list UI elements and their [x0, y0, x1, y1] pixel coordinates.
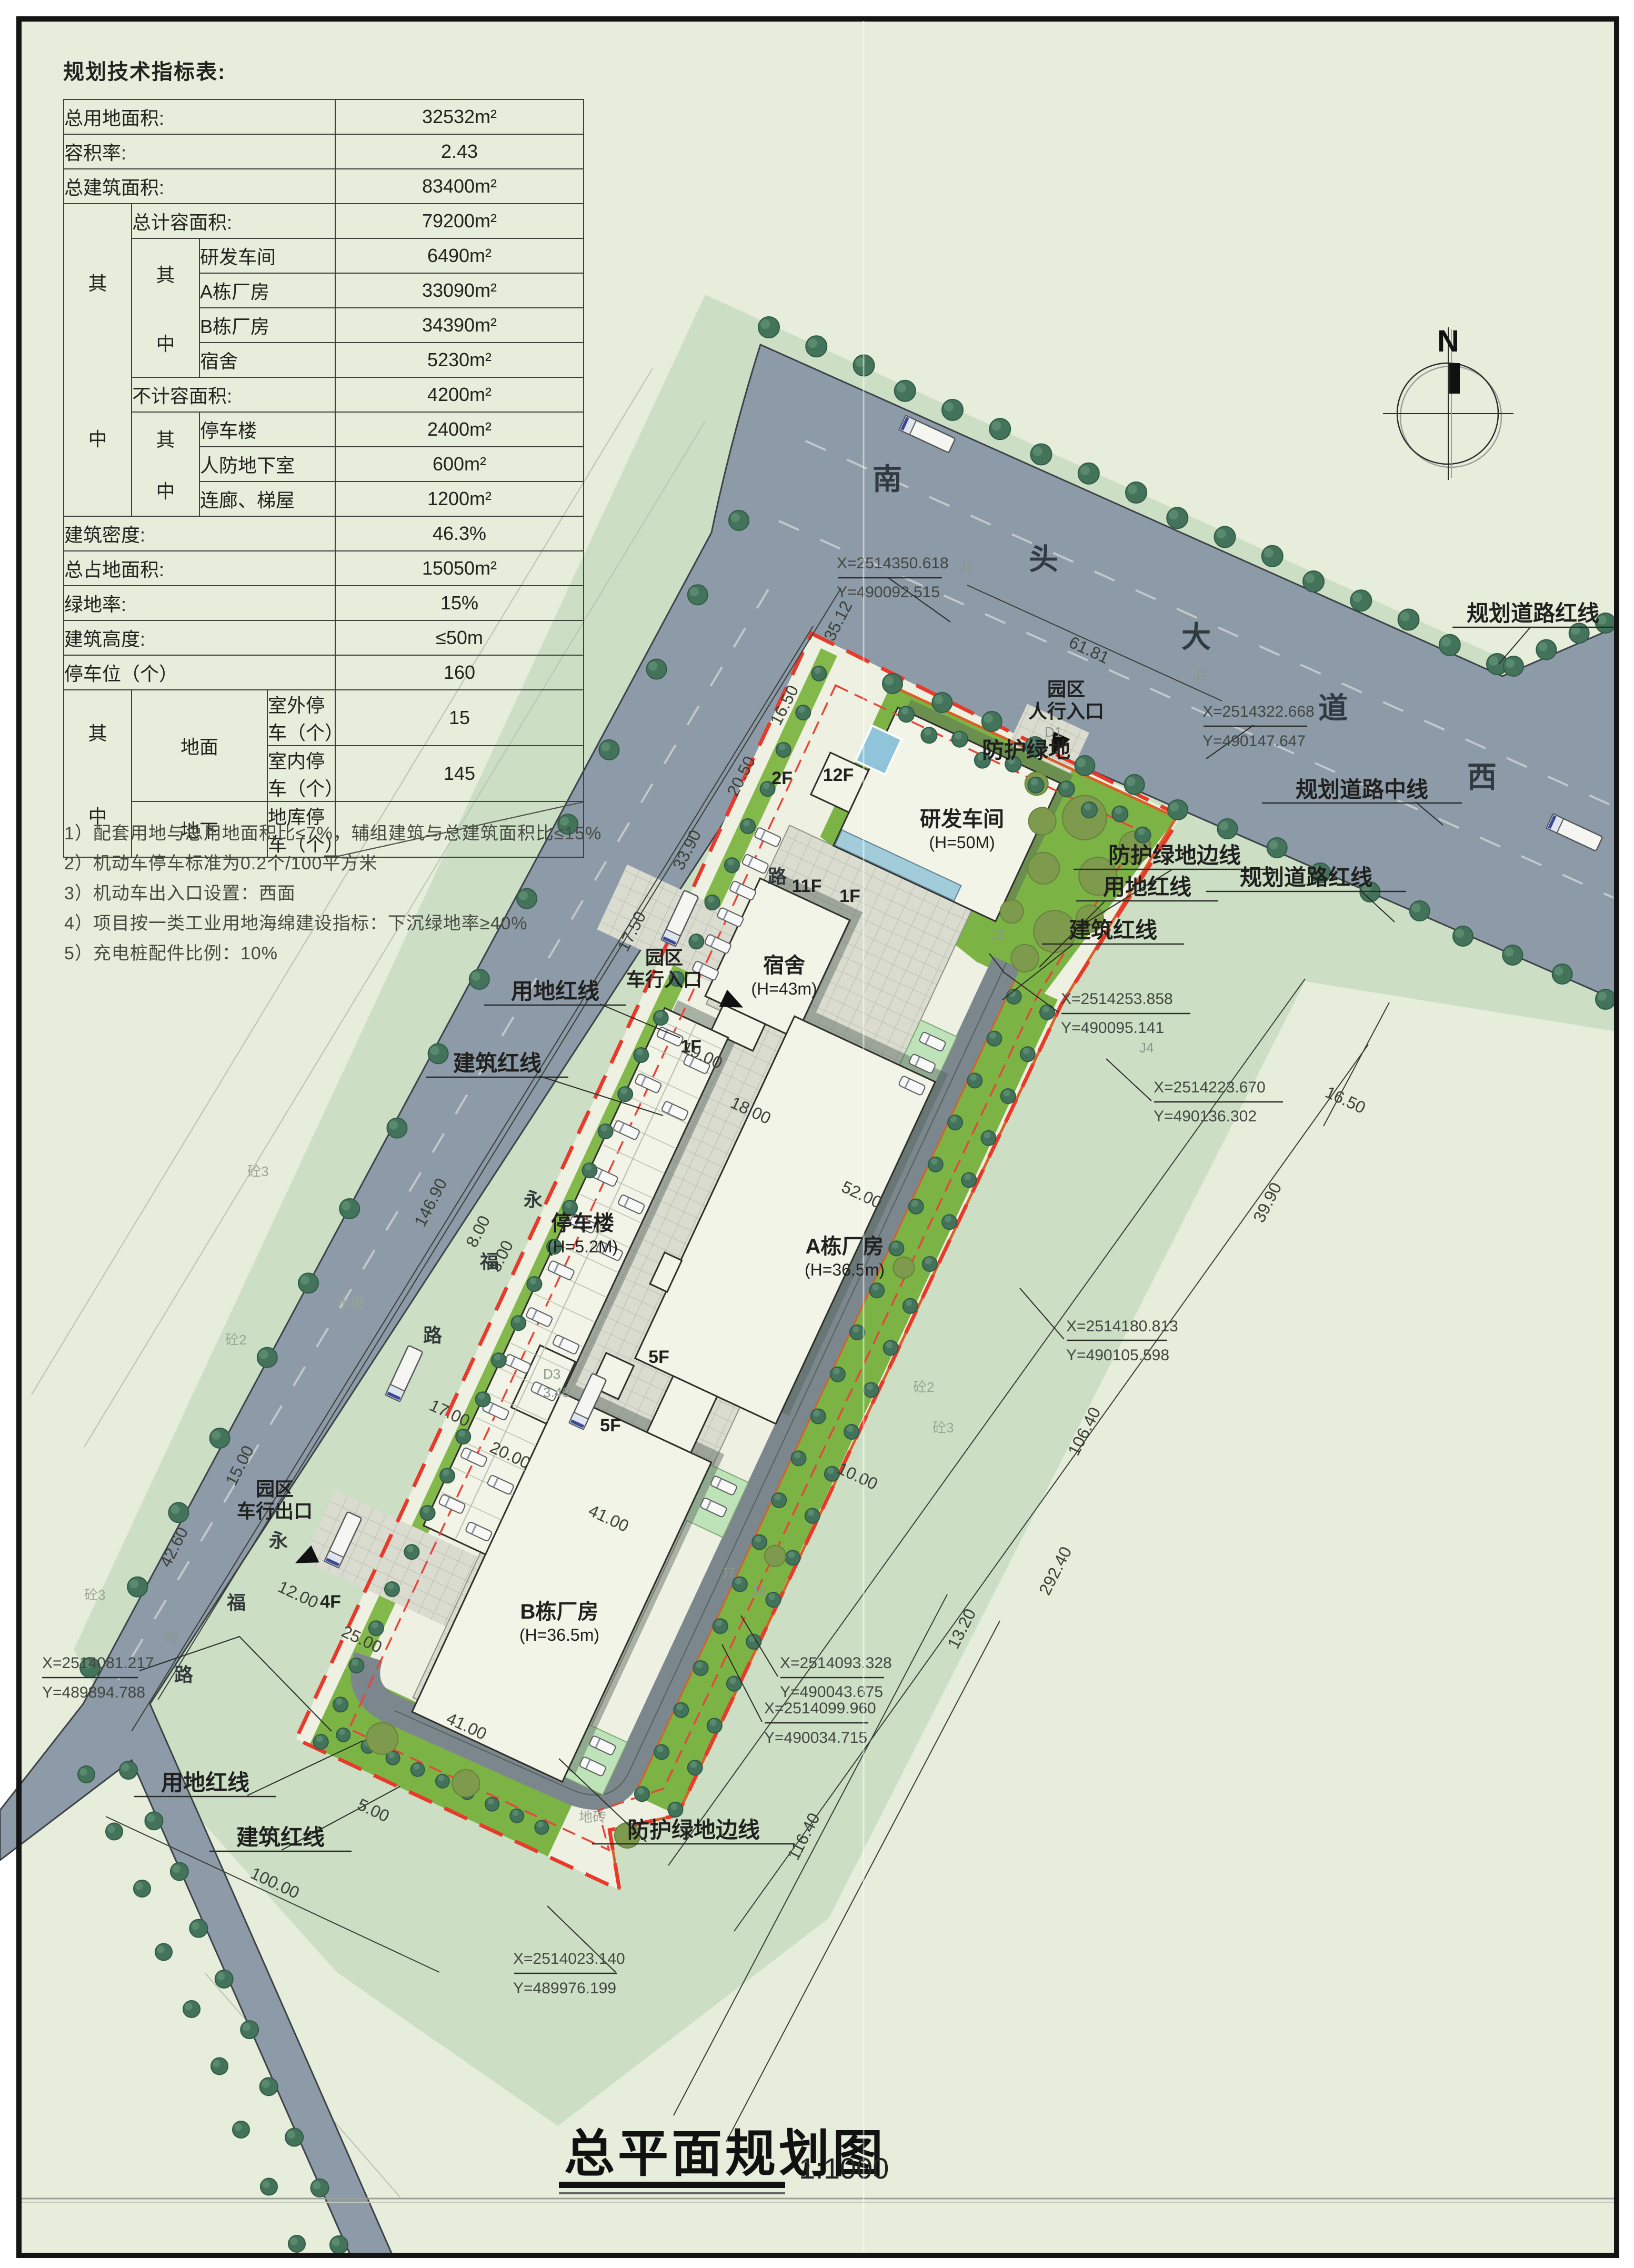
coord-y: Y=490095.141: [1061, 1019, 1164, 1037]
label-factory-a: A栋厂房: [806, 1235, 884, 1258]
row-label: B栋厂房: [199, 308, 335, 343]
label-vehicle-exit: 园区: [256, 1478, 294, 1500]
group-qizhong-inner: 其中: [132, 412, 199, 516]
row-value: 600m²: [335, 447, 584, 481]
marker: J1: [959, 558, 973, 574]
row-value: 33090m²: [335, 273, 584, 308]
tree-icon: [599, 740, 619, 760]
tree-icon: [339, 1199, 359, 1219]
row-value: 6490m²: [335, 238, 584, 273]
table-row: 容积率:2.43: [64, 134, 584, 169]
floor-tag-5f: 5F: [600, 1416, 621, 1436]
label-site-red-line-bottom: 用地红线: [161, 1770, 249, 1795]
row-label: 人防地下室: [199, 447, 335, 481]
row-value: 15050m²: [335, 551, 584, 586]
coord-y: Y=490136.302: [1154, 1108, 1257, 1125]
tree-icon: [1439, 635, 1460, 656]
note-line: 5）充电桩配件比例：10%: [64, 939, 748, 969]
label-site-red-line-right: 用地红线: [1103, 875, 1191, 899]
coord-x: X=2514093.328: [780, 1654, 892, 1672]
tree-icon: [1303, 571, 1324, 592]
tree-icon: [155, 1944, 172, 1961]
tree-icon: [215, 1970, 233, 1988]
group-ground: 地面: [132, 690, 267, 801]
char: 其: [88, 268, 107, 296]
row-label: 绿地率:: [64, 586, 335, 620]
label-planned-road-red-line-bottom: 规划道路红线: [1240, 865, 1372, 890]
floor-tag-4f: 4F: [320, 1592, 341, 1612]
label-pedestrian-entry: 园区: [1047, 678, 1085, 700]
table-row: 总占地面积:15050m²: [64, 551, 584, 586]
tree-icon: [1167, 507, 1188, 528]
table-row: 其中 地面 室外停车（个）15: [64, 690, 584, 746]
street-name-char: 福: [226, 1592, 246, 1613]
floor-tag-2f: 2F: [771, 768, 793, 788]
note-line: 1）配套用地与总用地面积比≤7%，辅组建筑与总建筑面积比≤15%: [64, 819, 748, 849]
road-name-char: 西: [1467, 760, 1497, 794]
coord-x: X=2514322.668: [1202, 703, 1315, 720]
tree-icon: [183, 2001, 200, 2018]
table-row: 其中 总计容面积:79200m²: [64, 204, 584, 238]
survey-text: 砼3: [933, 1420, 954, 1436]
tree-icon: [1078, 463, 1099, 484]
table-row: 其中 停车楼2400m²: [64, 412, 584, 447]
coord-y: Y=489894.788: [42, 1684, 145, 1701]
row-value: 32532m²: [335, 99, 584, 134]
row-value: 5230m²: [335, 343, 584, 377]
row-value: 2.43: [335, 134, 584, 169]
coord-x: X=2514180.813: [1066, 1318, 1178, 1335]
title-underline: [559, 2182, 785, 2188]
floor-tag-11f: 11F: [792, 876, 822, 896]
coord-y: Y=490105.598: [1066, 1347, 1169, 1364]
tree-icon: [298, 1273, 318, 1293]
row-value: ≤50m: [335, 620, 584, 655]
tree-icon: [758, 317, 779, 338]
tree-icon: [883, 674, 903, 694]
label-building-red-line-bottom: 建筑红线: [236, 1825, 325, 1850]
label-factory-b: B栋厂房: [520, 1600, 599, 1623]
char: 其: [88, 718, 107, 746]
note-line: 3）机动车出入口设置：西面: [64, 879, 748, 909]
tree-icon: [729, 510, 749, 530]
tree-icon: [119, 1761, 137, 1779]
row-label: 总计容面积:: [132, 204, 335, 238]
table-row: 总用地面积:32532m²: [64, 99, 584, 134]
coord-y: Y=489976.199: [513, 1980, 616, 1997]
row-value: 2400m²: [335, 412, 584, 447]
marker: 3.40: [543, 1384, 570, 1400]
row-value: 15: [335, 690, 584, 746]
road-name-char: 大: [1181, 620, 1211, 654]
table-row: 停车位（个）160: [64, 655, 584, 690]
survey-text: 地砖: [579, 1809, 606, 1825]
char: 其: [156, 425, 175, 452]
table-row: 不计容面积:4200m²: [64, 377, 584, 412]
tree-icon: [145, 1812, 163, 1830]
tree-icon: [1215, 527, 1236, 548]
survey-text: 水泥: [337, 1295, 364, 1311]
label-dormitory-height: (H=43m): [751, 979, 817, 998]
row-value: 145: [335, 746, 584, 801]
tree-icon: [127, 1577, 147, 1597]
label-rnd-workshop: 研发车间: [920, 808, 1004, 831]
note-line: 2）机动车停车标准为0.2个/100平方米: [64, 849, 748, 879]
tree-icon: [1398, 609, 1419, 630]
tree-icon: [257, 1348, 277, 1368]
row-value: 83400m²: [335, 169, 584, 204]
survey-text: 砼2: [913, 1379, 934, 1395]
tree-icon: [1596, 989, 1616, 1009]
tree-icon: [1569, 623, 1589, 643]
marker: J4: [1139, 1040, 1154, 1056]
row-value: 34390m²: [335, 308, 584, 343]
label-building-red-line-left: 建筑红线: [453, 1051, 542, 1076]
coord-y: Y=490092.515: [837, 584, 940, 601]
north-needle: [1449, 363, 1460, 394]
tree-icon: [210, 1428, 230, 1448]
tree-icon: [1168, 800, 1188, 820]
row-value: 79200m²: [335, 204, 584, 238]
label-planned-road-red-line-top: 规划道路红线: [1467, 601, 1599, 626]
tree-icon: [1536, 640, 1556, 660]
street-name-char: 路: [174, 1664, 194, 1685]
row-label: 建筑高度:: [64, 620, 335, 655]
label-dormitory: 宿舍: [763, 954, 805, 977]
tree-icon: [469, 969, 489, 989]
tree-icon: [1262, 546, 1283, 567]
row-label: 室外停车（个）: [267, 690, 335, 746]
site-plan-page: 南 头 大 道 西 永 福 路 永 福 路 路 用地红线 建筑红线 用地红线 建…: [0, 0, 1634, 2265]
tree-icon: [806, 336, 827, 357]
indicator-table-panel: 规划技术指标表: 总用地面积:32532m² 容积率:2.43 总建筑面积:83…: [63, 55, 587, 858]
table-row: 绿地率:15%: [64, 586, 584, 620]
coord-x: X=2514081.217: [42, 1654, 154, 1672]
tree-icon: [311, 2179, 329, 2197]
row-label: 研发车间: [199, 238, 335, 273]
table-title: 规划技术指标表:: [63, 55, 587, 85]
survey-text: 砼2: [225, 1332, 246, 1348]
tree-icon: [106, 1823, 123, 1840]
tree-icon: [387, 1118, 407, 1138]
label-protective-green: 防护绿地: [982, 738, 1070, 762]
tree-icon: [1075, 756, 1095, 776]
marker: J3: [990, 927, 1005, 942]
survey-text: 砼3: [84, 1587, 105, 1603]
road-name-char: 南: [873, 463, 902, 496]
marker: D1: [1045, 724, 1062, 740]
coord-x: X=2514099.960: [764, 1700, 876, 1717]
page-scale: 1:1000: [799, 2152, 889, 2185]
tree-icon: [932, 693, 952, 712]
row-label: 建筑密度:: [64, 516, 335, 551]
marker: D3: [543, 1366, 560, 1382]
tree-icon: [1503, 656, 1523, 676]
coord-x: X=2514223.670: [1154, 1079, 1266, 1096]
marker: J7: [721, 1565, 735, 1581]
north-letter: N: [1437, 324, 1459, 358]
tree-icon: [168, 1502, 188, 1522]
char: 中: [156, 476, 175, 504]
tree-icon: [288, 2235, 305, 2252]
floor-tag-1f: 1F: [839, 886, 860, 906]
tree-icon: [171, 1862, 188, 1880]
tree-icon: [1502, 945, 1522, 965]
tree-icon: [1031, 444, 1052, 465]
tree-icon: [1217, 819, 1237, 839]
road-name-char: 道: [1318, 691, 1348, 725]
group-qizhong-inner: 其中: [132, 238, 199, 377]
char: 其: [156, 260, 175, 287]
row-label: 容积率:: [64, 134, 335, 169]
row-label: 不计容面积:: [132, 377, 335, 412]
tree-icon: [330, 2236, 348, 2254]
row-label: 连廊、梯屋: [199, 481, 335, 516]
row-value: 15%: [335, 586, 584, 620]
coord-x: X=2514253.858: [1061, 990, 1173, 1008]
label-site-red-line-left: 用地红线: [511, 979, 599, 1003]
row-label: 室内停车（个）: [267, 746, 335, 801]
row-value: 4200m²: [335, 377, 584, 412]
tree-icon: [647, 659, 667, 679]
tree-icon: [189, 1920, 207, 1938]
tree-icon: [260, 2078, 278, 2095]
label-parking-deck: 停车楼: [551, 1212, 614, 1235]
row-label: A栋厂房: [199, 273, 335, 308]
tree-icon: [240, 2021, 258, 2039]
table-row: 建筑高度:≤50m: [64, 620, 584, 655]
tree-icon: [989, 418, 1010, 439]
group-qizhong-outer: 其中: [64, 204, 132, 516]
tree-icon: [285, 2129, 303, 2146]
coord-y: Y=490043.675: [780, 1683, 883, 1701]
tree-icon: [1125, 775, 1145, 795]
label-vehicle-exit: 车行出口: [237, 1500, 313, 1522]
marker: J9: [163, 1629, 177, 1645]
label-parking-deck-height: (H=5.2M): [547, 1237, 618, 1256]
row-value: 46.3%: [335, 516, 584, 551]
street-name-char: 路: [423, 1324, 443, 1346]
tree-icon: [895, 380, 916, 402]
label-rnd-workshop-height: (H=50M): [929, 833, 995, 852]
label-building-red-line-right: 建筑红线: [1069, 918, 1157, 942]
tree-icon: [211, 2058, 228, 2075]
street-name-char: 永: [524, 1189, 543, 1210]
tree-icon: [1410, 901, 1430, 921]
row-value: 160: [335, 655, 584, 690]
coord-y: Y=490034.715: [764, 1729, 867, 1747]
row-label: 宿舍: [199, 343, 335, 377]
char: 中: [88, 424, 107, 451]
road-name-char: 头: [1029, 543, 1058, 576]
tree-icon: [428, 1043, 448, 1063]
street-name-char: 路: [768, 866, 787, 887]
char: 中: [156, 329, 175, 356]
row-label: 停车位（个）: [64, 655, 335, 690]
plan-notes: 1）配套用地与总用地面积比≤7%，辅组建筑与总建筑面积比≤15% 2）机动车停车…: [64, 819, 748, 969]
tree-icon: [982, 711, 1002, 731]
street-name-char: 永: [269, 1530, 288, 1551]
label-vehicle-entry: 车行入口: [626, 969, 702, 990]
tree-icon: [1350, 590, 1371, 611]
tree-icon: [1453, 926, 1473, 946]
label-protective-green-edge-bottom: 防护绿地边线: [627, 1818, 760, 1842]
marker: J2: [1194, 667, 1208, 683]
tree-icon: [942, 399, 963, 420]
survey-text: 砼3: [247, 1163, 268, 1179]
row-label: 总建筑面积:: [64, 169, 335, 204]
label-protective-green-edge-right: 防护绿地边线: [1108, 843, 1241, 868]
row-label: 总用地面积:: [64, 99, 335, 134]
coord-x: X=2514350.618: [837, 555, 949, 572]
tree-icon: [233, 2121, 249, 2138]
tree-icon: [260, 2179, 277, 2195]
row-label: 停车楼: [199, 412, 335, 447]
row-value: 1200m²: [335, 481, 584, 516]
marker: J6: [751, 1583, 766, 1599]
tree-icon: [1552, 964, 1572, 984]
label-planned-road-center-line: 规划道路中线: [1296, 777, 1428, 802]
floor-tag-12f: 12F: [823, 765, 854, 785]
row-label: 总占地面积:: [64, 551, 335, 586]
coord-y: Y=490147.647: [1202, 732, 1306, 750]
tree-icon: [78, 1766, 95, 1783]
label-pedestrian-entry: 人行入口: [1028, 700, 1104, 722]
label-factory-b-height: (H=36.5m): [519, 1625, 599, 1644]
table-row: 总建筑面积:83400m²: [64, 169, 584, 204]
tree-icon: [1267, 838, 1287, 858]
tree-icon: [688, 585, 708, 605]
tree-icon: [1126, 482, 1147, 503]
title-underline-2: [559, 2192, 785, 2194]
tree-icon: [134, 1880, 151, 1897]
label-factory-a-height: (H=36.5m): [805, 1260, 885, 1279]
coord-x: X=2514023.140: [513, 1950, 625, 1968]
table-row: 其中 研发车间6490m²: [64, 238, 584, 273]
table-row: 建筑密度:46.3%: [64, 516, 584, 551]
floor-tag-5f: 5F: [648, 1347, 669, 1367]
note-line: 4）项目按一类工业用地海绵建设指标：下沉绿地率≥40%: [64, 909, 748, 939]
indicator-table: 总用地面积:32532m² 容积率:2.43 总建筑面积:83400m² 其中 …: [63, 99, 584, 858]
